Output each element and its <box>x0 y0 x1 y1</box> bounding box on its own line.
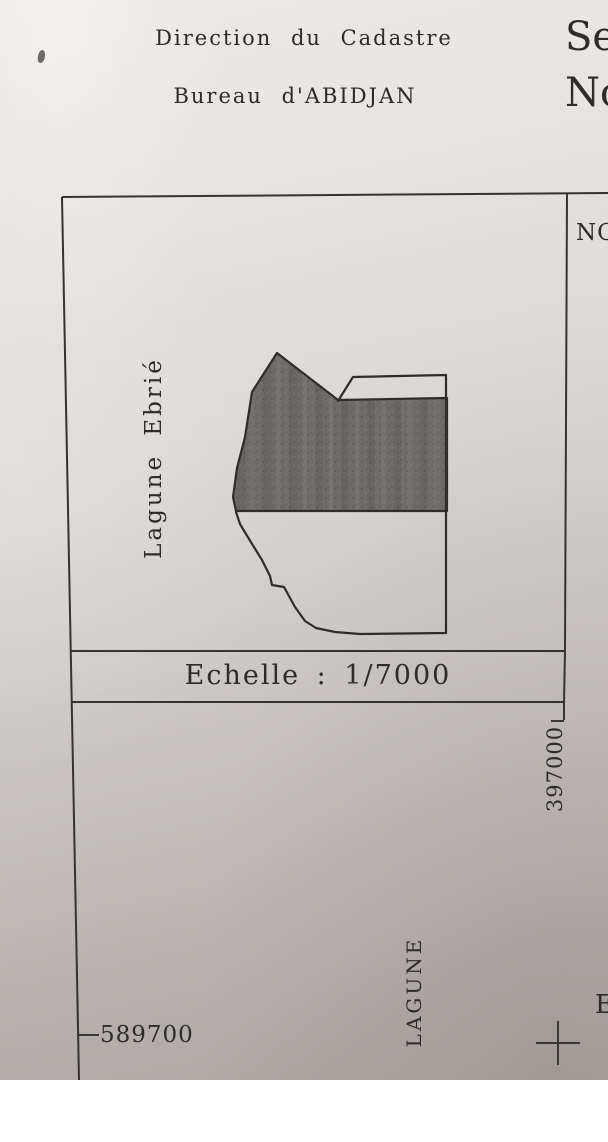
coordinate-marks <box>79 721 580 1065</box>
water-label: Lagune Ebrié <box>141 308 167 608</box>
grid-cross-mark <box>536 1021 580 1065</box>
y-coordinate-label: 397000 <box>543 619 567 919</box>
right-panel-label: NO <box>576 220 608 246</box>
scale-label: Echelle : 1/7000 <box>70 660 566 691</box>
frame-left-border <box>62 197 79 1080</box>
cadastral-map-drawing <box>0 0 608 1080</box>
x-coordinate-label: 589700 <box>100 1022 194 1048</box>
frame-top-border <box>62 193 608 197</box>
right-edge-partial-letter: E <box>595 990 608 1020</box>
lagune-label: LAGUNE <box>402 842 426 1142</box>
